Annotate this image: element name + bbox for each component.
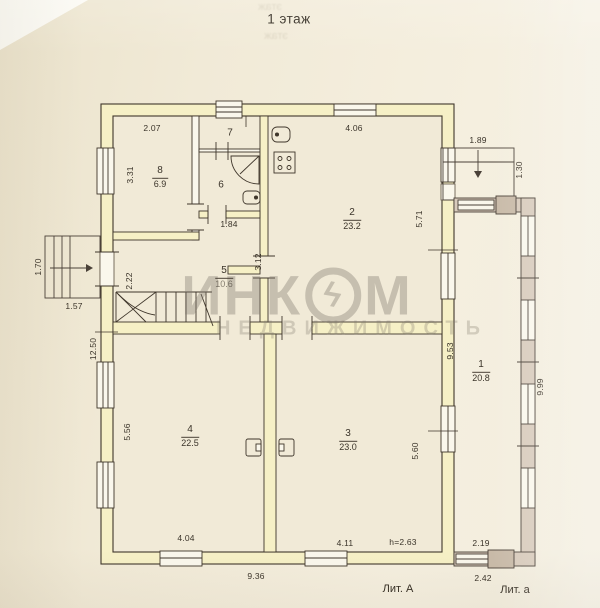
scan-corner-artifact	[0, 0, 88, 50]
room-label-4: 422.5	[181, 424, 199, 448]
room-label-7: 7	[227, 127, 233, 139]
dim-room2-top: 4.06	[345, 123, 362, 133]
dim-room8-top: 2.07	[143, 123, 160, 133]
dim-room2-right: 5.71	[414, 210, 424, 227]
plan-linework	[0, 0, 600, 608]
dim-porch-top: 1.89	[469, 135, 486, 145]
dim-veranda-right: 9.99	[535, 378, 545, 395]
dim-veranda-left: 9.53	[445, 342, 455, 359]
dim-veranda-bottom: 2.42	[474, 573, 491, 583]
dim-hall-left: 2.22	[124, 272, 134, 289]
room-label-5: 510.6	[215, 265, 233, 289]
dim-stoop-left: 1.70	[33, 258, 43, 275]
dim-hall-right: 3.12	[253, 253, 263, 270]
dim-room8-left: 3.31	[125, 166, 135, 183]
room-label-1: 120.8	[472, 359, 490, 383]
dim-hall-pass: 1.84	[220, 219, 237, 229]
veranda-walls	[454, 196, 539, 568]
dim-stoop-bottom: 1.57	[65, 301, 82, 311]
dim-room3-right: 5.60	[410, 442, 420, 459]
floor-plan-page: 1 этаж этаж этаж ИНКϟМ НЕДВИЖИМОСТЬ 86.9…	[0, 0, 600, 608]
dim-room3-bottom: 4.11	[337, 538, 354, 548]
dim-veranda-width: 2.19	[472, 538, 489, 548]
room-label-2: 223.2	[343, 207, 361, 231]
bleed-through-text: этаж	[264, 30, 288, 42]
dim-left-total: 12.50	[88, 338, 98, 360]
bleed-through-text: этаж	[258, 1, 282, 13]
dim-bottom-total: 9.36	[247, 571, 264, 581]
litera-main: Лит. А	[383, 583, 414, 595]
dim-porch-right: 1.30	[514, 161, 524, 178]
litera-annex: Лит. а	[500, 584, 529, 596]
page-title: 1 этаж	[267, 12, 310, 27]
dim-room4-bottom: 4.04	[177, 533, 194, 543]
room-label-6: 6	[218, 179, 224, 191]
dim-room4-left: 5.56	[122, 423, 132, 440]
room-label-3: 323.0	[339, 428, 357, 452]
room-label-8: 86.9	[152, 165, 168, 189]
dim-ceiling-height: h=2.63	[389, 537, 416, 547]
